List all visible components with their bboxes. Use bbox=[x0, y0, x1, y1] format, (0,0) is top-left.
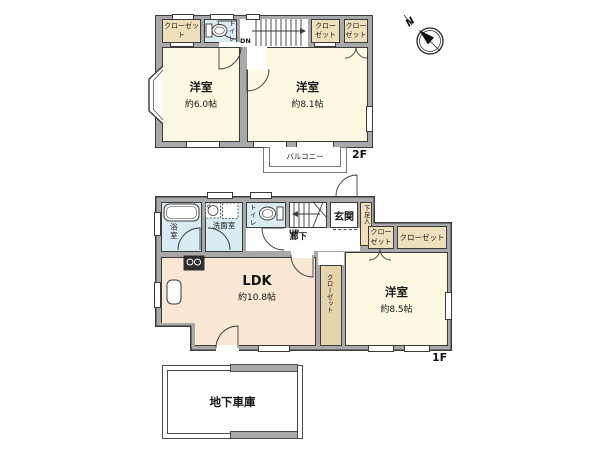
window bbox=[154, 282, 161, 308]
washer-box-label: 洗 bbox=[225, 205, 234, 216]
window bbox=[258, 345, 290, 352]
room-name: 洋室 bbox=[190, 79, 213, 95]
room-area: 約8.5帖 bbox=[380, 302, 412, 315]
door-opening bbox=[219, 42, 240, 47]
floor1-stairs bbox=[289, 202, 327, 228]
closet-mid-label: クローゼット bbox=[325, 274, 333, 340]
floor1-washroom-label: 洗面室 bbox=[203, 221, 245, 230]
floor1-closet-hall: クローゼット bbox=[368, 226, 394, 249]
balcony-railing: バルコニー bbox=[269, 147, 341, 167]
window bbox=[368, 345, 394, 352]
garage-wall-bottom bbox=[230, 431, 298, 439]
floor2-closet-left: クローゼット bbox=[162, 19, 201, 43]
floor2-toilet-label: トイレ bbox=[227, 20, 235, 44]
closet-label: クローゼット bbox=[345, 22, 367, 40]
floor1-entrance: 玄関 bbox=[330, 202, 358, 228]
window bbox=[207, 192, 233, 199]
room-name: 洋室 bbox=[385, 284, 408, 300]
door-entrance bbox=[336, 175, 357, 196]
window bbox=[404, 345, 430, 352]
room-name: 洋室 bbox=[296, 79, 319, 95]
floor2-room-west: 洋室 約6.0帖 bbox=[162, 47, 240, 142]
closet-sliding-door bbox=[170, 42, 194, 47]
floor1-closet-east: クローゼット bbox=[397, 226, 447, 249]
room-area: 約8.1帖 bbox=[291, 97, 323, 110]
compass-icon: N bbox=[404, 15, 443, 54]
ldk-name: LDK bbox=[217, 274, 297, 290]
room-area: 約6.0帖 bbox=[185, 97, 217, 110]
floor1-label: 1F bbox=[432, 351, 447, 365]
garage-label: 地下車庫 bbox=[210, 394, 256, 410]
door-opening bbox=[216, 345, 239, 351]
floor1-stairs-label: UP bbox=[289, 228, 299, 236]
closet-sliding-door bbox=[314, 42, 336, 47]
garage-inner: 地下車庫 bbox=[167, 370, 298, 434]
compass-north-label: N bbox=[404, 15, 418, 29]
closet-label: クローゼット bbox=[163, 22, 200, 40]
floor-plan: クローゼット トイレ クローゼット クローゼット 洋室 約6.0帖 洋室 約8.… bbox=[0, 0, 600, 450]
floor1-toilet-label: トイレ bbox=[248, 204, 256, 227]
closet-label: クローゼット bbox=[312, 22, 339, 40]
floor2-room-east-vestibule bbox=[247, 47, 267, 70]
floor1-bath bbox=[161, 202, 202, 252]
window bbox=[210, 14, 234, 20]
window bbox=[154, 212, 161, 236]
door-opening bbox=[291, 251, 314, 258]
closet-label: クローゼット bbox=[400, 232, 445, 243]
balcony-label: バルコニー bbox=[286, 151, 323, 162]
window bbox=[186, 141, 220, 148]
floor2-stairs-label: DN bbox=[240, 37, 251, 45]
entrance-label: 玄関 bbox=[334, 208, 354, 223]
window bbox=[172, 14, 194, 20]
entrance-step-line bbox=[333, 227, 357, 230]
floor2-label: 2F bbox=[352, 148, 367, 162]
ldk-area: 約10.8帖 bbox=[217, 293, 297, 304]
window bbox=[366, 106, 373, 132]
window bbox=[250, 192, 272, 199]
window bbox=[445, 292, 452, 320]
floor1-vestibule bbox=[318, 252, 344, 265]
floor2-closet-mid: クローゼット bbox=[311, 19, 340, 43]
window bbox=[246, 14, 260, 20]
garage-wall-top bbox=[230, 364, 298, 372]
floor2-closet-right: クローゼット bbox=[344, 19, 368, 43]
floor1-bath-label: 浴室 bbox=[169, 223, 178, 251]
floor1-room-east: 洋室 約8.5帖 bbox=[345, 252, 448, 346]
closet-label: クローゼット bbox=[369, 228, 393, 246]
floor1-ldk: LDK 約10.8帖 bbox=[161, 257, 316, 346]
